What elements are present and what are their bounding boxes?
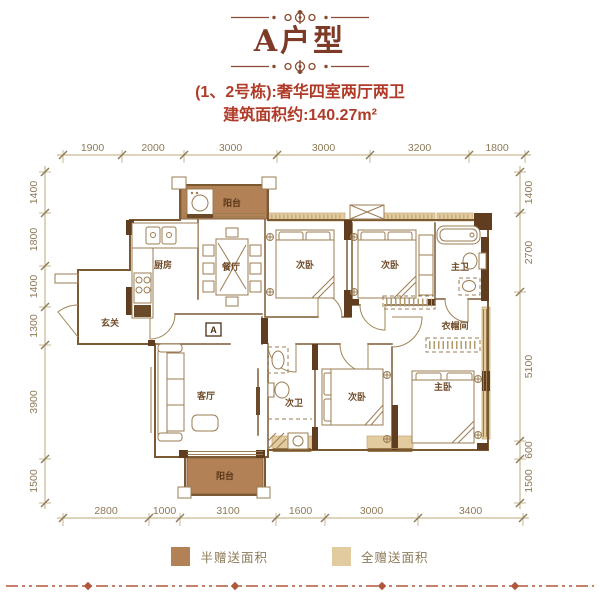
dim-label-top-5: 1800 xyxy=(485,142,509,154)
dim-label-right-0: 1400 xyxy=(523,181,535,205)
dim-label-top-3: 3000 xyxy=(312,142,336,154)
dim-label-right-2: 5100 xyxy=(523,355,535,379)
dim-label-bottom-4: 3000 xyxy=(360,505,384,517)
full-gift-swatch xyxy=(332,547,351,566)
kitchen-fixtures xyxy=(132,223,198,318)
room-label-bedroom-bottom: 次卧 xyxy=(348,391,366,402)
dim-label-top-0: 1900 xyxy=(81,142,105,154)
dim-label-bottom-2: 3100 xyxy=(216,505,240,517)
header: A户型 (1、2号栋):奢华四室两厅两卫 建筑面积约:140.27m² xyxy=(0,0,600,127)
title-ornament-bottom xyxy=(225,59,375,74)
full-gift-label: 全赠送面积 xyxy=(361,547,429,566)
vent-shaft xyxy=(350,205,384,219)
room-label-living: 客厅 xyxy=(196,390,215,401)
dim-label-left-2: 1400 xyxy=(28,275,40,299)
dim-label-left-3: 1300 xyxy=(28,314,40,338)
washing-machine-icon xyxy=(187,189,213,218)
room-label-master-bedroom: 主卧 xyxy=(434,381,452,392)
dim-label-bottom-0: 2800 xyxy=(94,505,118,517)
dim-label-bottom-5: 3400 xyxy=(459,505,483,517)
floor-plan: A 阳台 厨房 餐厅 玄关 次卧 次卧 主卫 衣帽间 客厅 次卫 次卧 主卧 阳… xyxy=(0,127,600,539)
half-gift-swatch xyxy=(171,547,190,566)
master-bath-fixtures xyxy=(437,226,486,295)
dim-label-bottom-1: 1000 xyxy=(153,505,177,517)
room-label-bedroom-top-2: 次卧 xyxy=(381,259,399,270)
subtitle-area: 建筑面积约:140.27m² xyxy=(0,104,600,127)
unit-marker: A xyxy=(206,323,221,336)
subtitle-building: (1、2号栋):奢华四室两厅两卫 xyxy=(0,81,600,104)
dim-label-top-4: 3200 xyxy=(408,142,432,154)
half-gift-label: 半赠送面积 xyxy=(200,547,268,566)
legend: 半赠送面积 全赠送面积 xyxy=(0,547,600,566)
dim-label-bottom-3: 1600 xyxy=(289,505,313,517)
bedroom-bottom-bed xyxy=(322,369,391,443)
dimension-lines: 1900200030003000320018002800100031001600… xyxy=(28,142,535,526)
dim-label-left-5: 1500 xyxy=(28,469,40,493)
legend-item-half-gift: 半赠送面积 xyxy=(171,547,268,566)
room-label-dining: 餐厅 xyxy=(221,261,240,272)
dim-label-right-3: 600 xyxy=(523,441,535,459)
room-label-bath-2: 次卫 xyxy=(285,397,303,408)
unit-marker-label: A xyxy=(210,325,217,335)
decorative-border xyxy=(0,578,600,599)
page-title: A户型 xyxy=(0,26,600,58)
legend-item-full-gift: 全赠送面积 xyxy=(332,547,429,566)
room-label-balcony-top: 阳台 xyxy=(223,197,241,208)
room-label-entry: 玄关 xyxy=(101,317,119,328)
dim-label-top-1: 2000 xyxy=(141,142,165,154)
dim-label-left-1: 1800 xyxy=(28,228,40,252)
room-label-balcony-bottom: 阳台 xyxy=(216,470,234,481)
room-label-bedroom-top-1: 次卧 xyxy=(296,259,314,270)
room-label-kitchen: 厨房 xyxy=(154,259,172,270)
entry-ledge xyxy=(55,274,78,283)
dim-label-right-4: 1500 xyxy=(523,469,535,493)
dim-label-right-1: 2700 xyxy=(523,241,535,265)
room-label-closet: 衣帽间 xyxy=(441,320,468,331)
dim-label-left-0: 1400 xyxy=(28,181,40,205)
dim-label-top-2: 3000 xyxy=(219,142,243,154)
dim-label-left-4: 3900 xyxy=(28,390,40,414)
title-ornament-top xyxy=(225,10,375,25)
room-label-master-bath: 主卫 xyxy=(451,261,469,272)
